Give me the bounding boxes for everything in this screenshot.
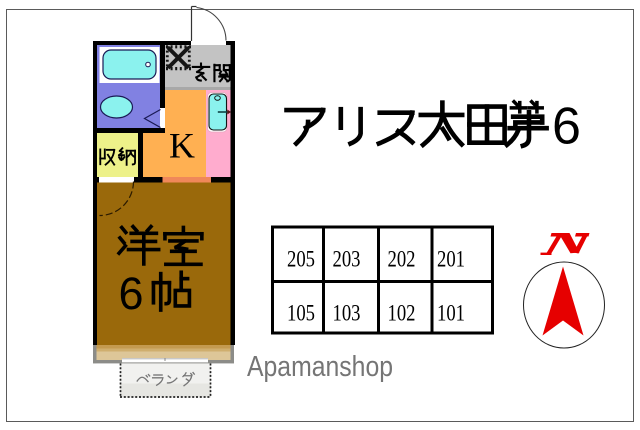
svg-text:6: 6	[552, 98, 581, 156]
svg-text:105: 105	[287, 301, 315, 327]
svg-text:103: 103	[333, 301, 361, 327]
svg-text:203: 203	[333, 247, 361, 273]
svg-text:202: 202	[388, 247, 416, 273]
svg-text:102: 102	[388, 301, 416, 327]
svg-text:Apamanshop: Apamanshop	[247, 351, 393, 383]
svg-text:6: 6	[119, 268, 144, 319]
svg-text:205: 205	[287, 247, 315, 273]
svg-text:101: 101	[437, 301, 465, 327]
svg-text:K: K	[169, 126, 195, 166]
svg-text:201: 201	[437, 247, 465, 273]
